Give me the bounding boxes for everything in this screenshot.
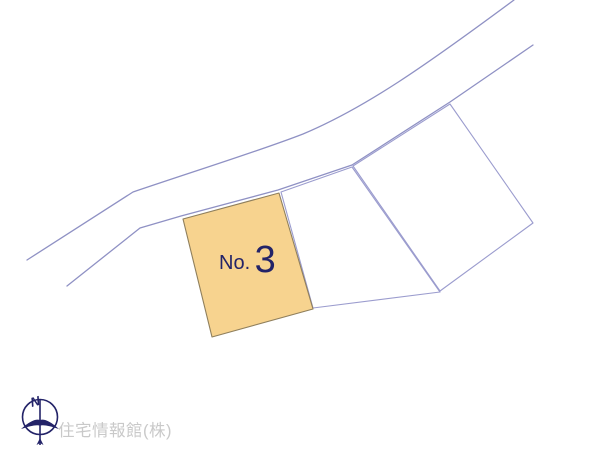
company-watermark: 住宅情報館(株) bbox=[58, 421, 172, 440]
north-compass: N bbox=[21, 393, 59, 445]
plot-map-canvas: No. 3 N 住宅情報館(株) bbox=[0, 0, 600, 450]
lot-no3-label-prefix: No. bbox=[219, 252, 250, 274]
plot-map-page: No. 3 N 住宅情報館(株) bbox=[0, 0, 600, 450]
lot-no3-label-number: 3 bbox=[255, 239, 276, 281]
